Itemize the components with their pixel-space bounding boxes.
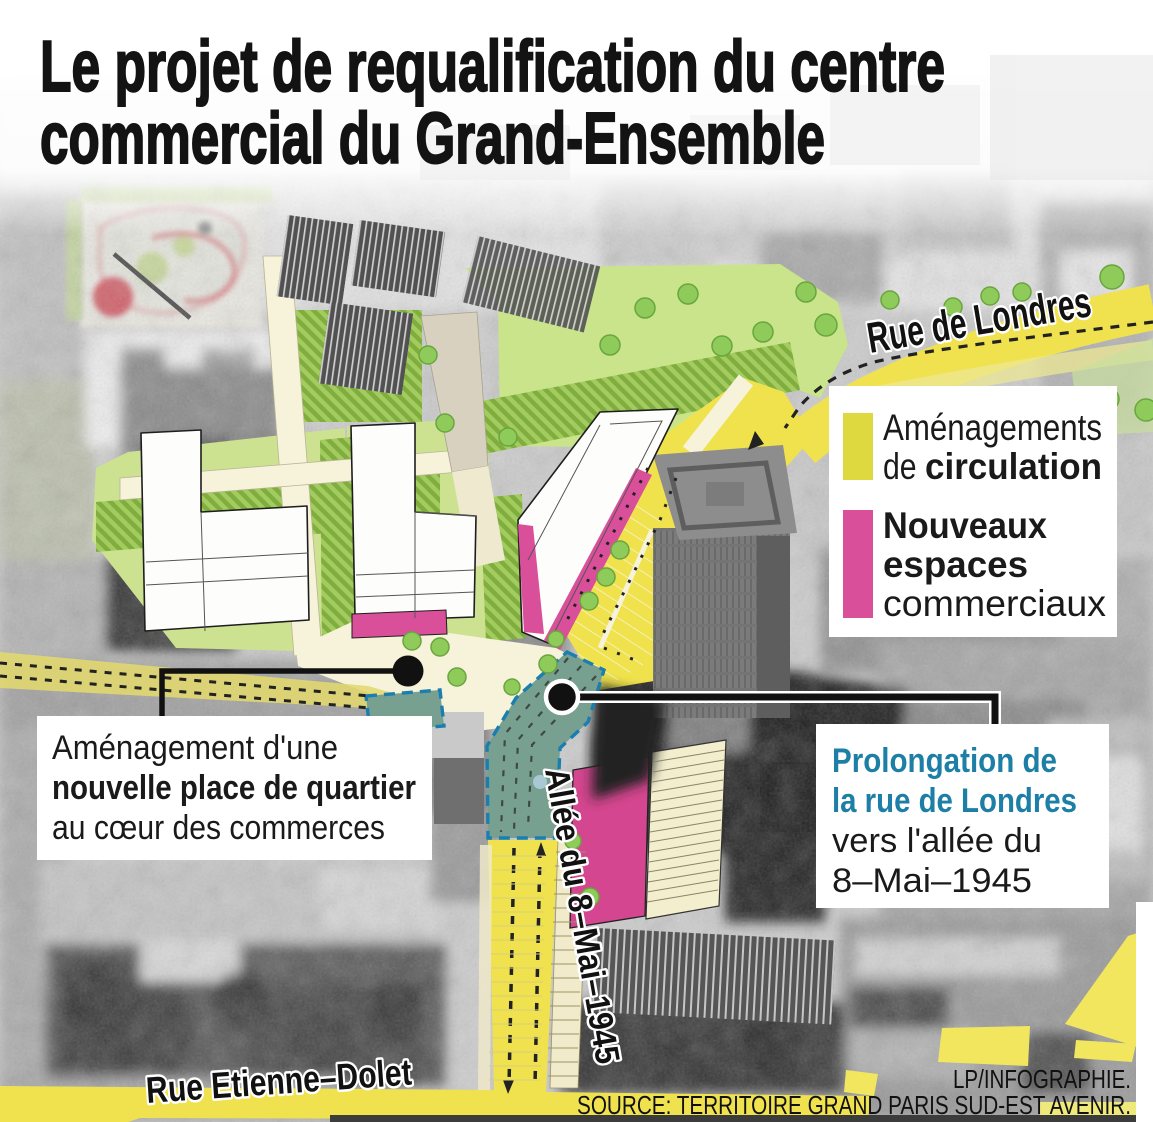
- svg-text:8–Mai–1945: 8–Mai–1945: [832, 862, 1032, 900]
- svg-text:Le projet de requalification d: Le projet de requalification du centre: [40, 27, 945, 107]
- svg-text:de circulation: de circulation: [883, 446, 1102, 487]
- svg-text:nouvelle place de quartier: nouvelle place de quartier: [52, 769, 416, 807]
- svg-text:Nouveaux: Nouveaux: [883, 505, 1047, 546]
- svg-text:Aménagements: Aménagements: [883, 407, 1102, 448]
- svg-text:Aménagement d'une: Aménagement d'une: [52, 729, 338, 767]
- svg-text:espaces: espaces: [883, 544, 1028, 585]
- svg-text:commercial du Grand-Ensemble: commercial du Grand-Ensemble: [40, 99, 825, 179]
- svg-text:au cœur des commerces: au cœur des commerces: [52, 809, 385, 847]
- svg-text:vers l'allée du: vers l'allée du: [832, 822, 1042, 860]
- svg-text:la rue de Londres: la rue de Londres: [832, 782, 1077, 820]
- svg-text:commerciaux: commerciaux: [883, 583, 1107, 624]
- svg-text:Prolongation de: Prolongation de: [832, 742, 1057, 780]
